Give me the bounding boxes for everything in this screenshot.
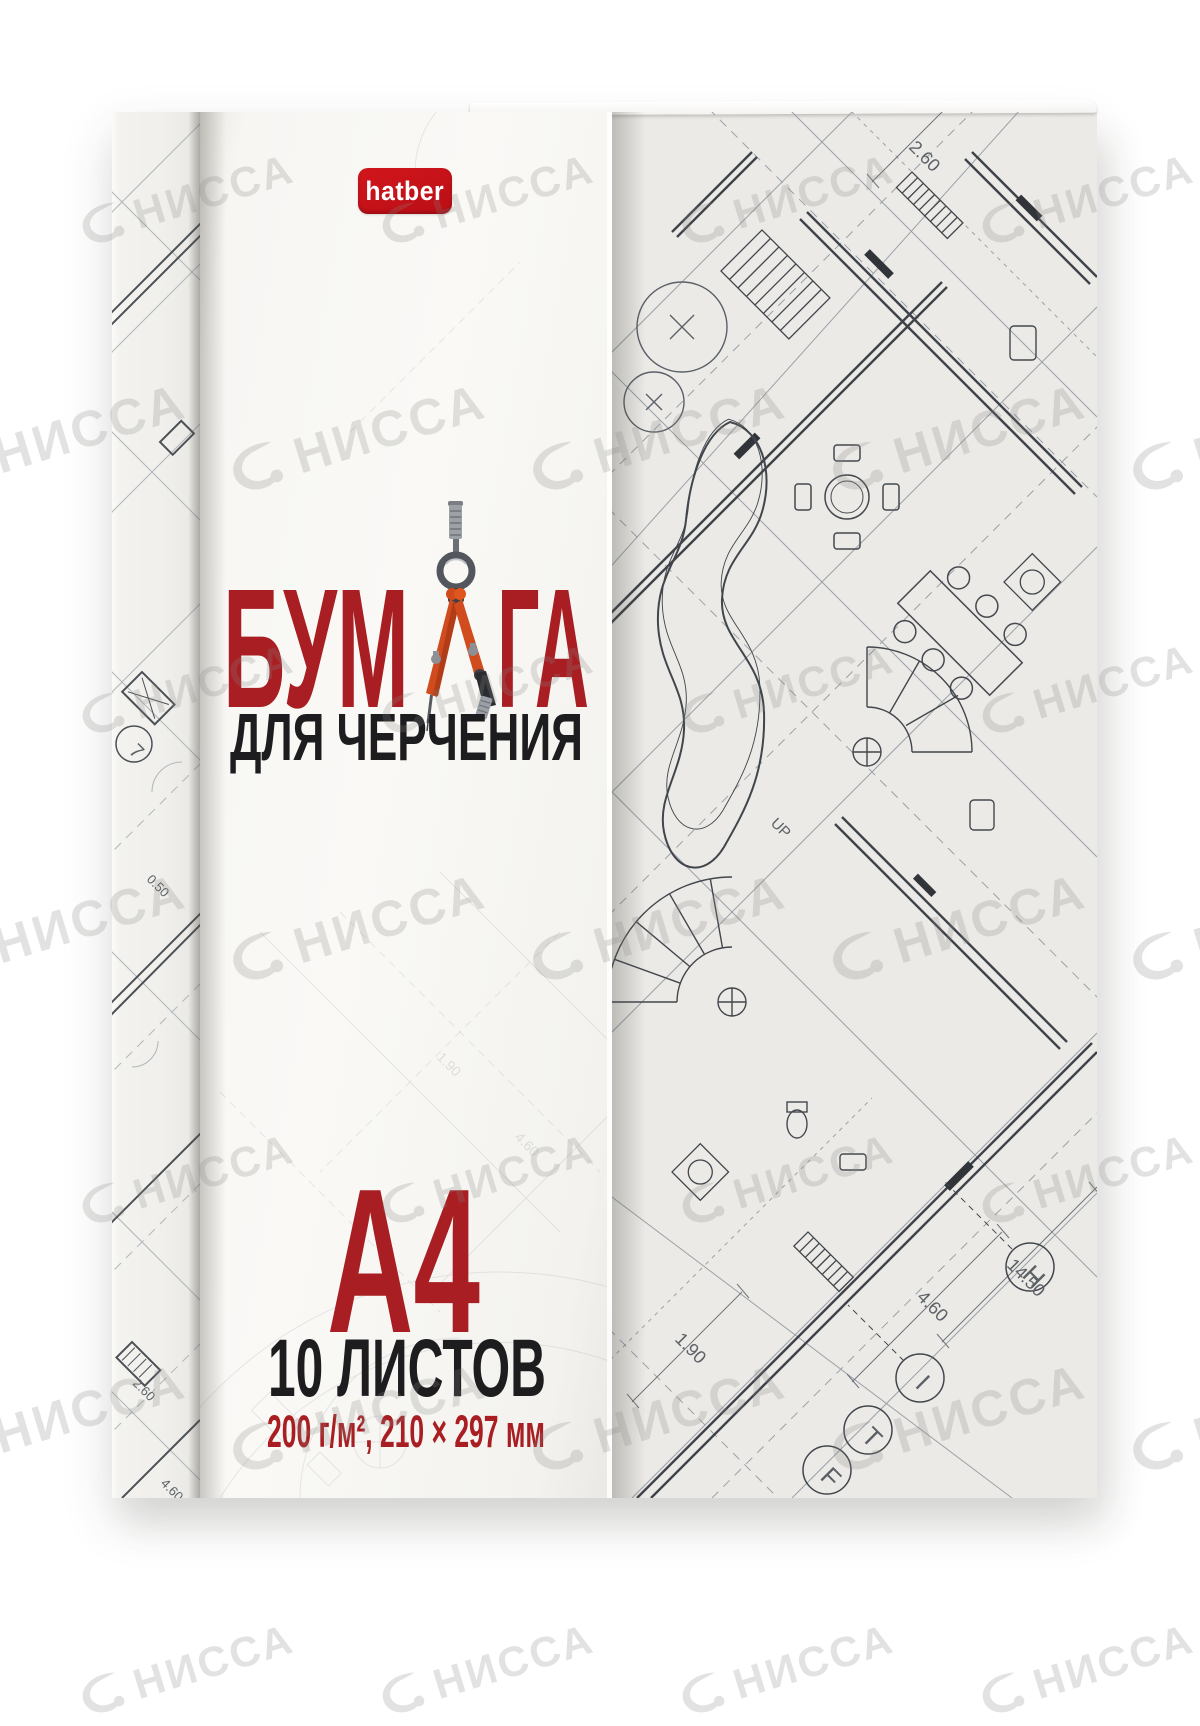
nissa-logo-icon	[1123, 436, 1192, 501]
blueprint-dim-1-90: 1.90	[671, 1329, 710, 1368]
watermark-label: НИССА	[1027, 1613, 1200, 1709]
blueprint-left-pattern: 7 0.50 2.60 4.60	[112, 112, 200, 1498]
watermark-tile: НИССА	[1121, 0, 1200, 15]
brand-logo-label: hatber	[366, 176, 445, 207]
brand-logo: hatber	[358, 168, 452, 214]
watermark-tile: НИССА	[221, 0, 493, 15]
watermark-tile: НИССА	[1121, 371, 1200, 506]
nissa-logo-icon	[1123, 1416, 1192, 1481]
cover-edge-shadow	[612, 112, 646, 1498]
product-subtitle-block: ДЛЯ ЧЕРЧЕНИЯ	[200, 704, 612, 779]
nissa-logo-icon	[1123, 0, 1192, 11]
product-photo: 7 0.50 2.60 4.60	[0, 0, 1200, 1600]
watermark-tile: НИССА	[521, 0, 793, 15]
blueprint-dim-2-60: 2.60	[130, 1376, 159, 1405]
watermark-label: НИССА	[427, 1613, 600, 1709]
watermark-label: НИССА	[1187, 1351, 1200, 1466]
blueprint-dim-4-60: 4.60	[913, 1287, 952, 1326]
watermark-label: НИССА	[1187, 861, 1200, 976]
sheets-block: 10 ЛИСТОВ	[200, 1334, 612, 1409]
paper-pack: 7 0.50 2.60 4.60	[112, 112, 1097, 1498]
watermark-label: НИССА	[1187, 371, 1200, 486]
watermark-tile: НИССА	[73, 1613, 300, 1726]
nissa-logo-icon	[674, 1668, 732, 1722]
watermark-label: НИССА	[127, 1613, 300, 1709]
watermark-tile: НИССА	[673, 1613, 900, 1726]
label-band: 1.90 4.60 hatber БУМ ГА	[200, 112, 612, 1498]
nissa-logo-icon	[1123, 926, 1192, 991]
watermark-tile: НИССА	[821, 0, 1093, 15]
blueprint-right-pattern: H I F Т 14.50 4.60 1.90 2.60 UP	[612, 112, 1097, 1498]
nissa-logo-icon	[523, 0, 592, 11]
back-sheet-strip: 7 0.50 2.60 4.60	[112, 112, 200, 1498]
compass-icon	[426, 501, 496, 733]
specs-label: 200 г/м², 210 × 297 мм	[267, 1406, 545, 1457]
nissa-logo-icon	[374, 1668, 432, 1722]
sheets-label: 10 ЛИСТОВ	[268, 1323, 546, 1414]
fold-crease	[188, 112, 200, 1498]
product-subtitle: ДЛЯ ЧЕРЧЕНИЯ	[230, 700, 583, 775]
blueprint-marker-7: 7	[124, 740, 147, 763]
watermark-tile: НИССА	[973, 1613, 1200, 1726]
nissa-logo-icon	[974, 1668, 1032, 1722]
blueprint-dim-faint-4-60: 4.60	[512, 1129, 543, 1160]
watermark-tile: НИССА	[373, 1613, 600, 1726]
format-block: А4	[200, 1169, 612, 1344]
cover-blueprint: H I F Т 14.50 4.60 1.90 2.60 UP	[612, 112, 1097, 1498]
blueprint-dim-4-60-strip: 4.60	[158, 1476, 187, 1498]
watermark-label: НИССА	[727, 1613, 900, 1709]
nissa-logo-icon	[823, 0, 892, 11]
blueprint-dim-0-50: 0.50	[144, 872, 173, 901]
watermark-tile: НИССА	[1121, 861, 1200, 996]
nissa-logo-icon	[74, 1668, 132, 1722]
nissa-logo-icon	[223, 0, 292, 11]
blueprint-marker-i: I	[910, 1369, 936, 1395]
specs-block: 200 г/м², 210 × 297 мм	[200, 1409, 612, 1459]
watermark-tile: НИССА	[0, 0, 193, 15]
blueprint-up-label: UP	[767, 815, 794, 842]
watermark-tile: НИССА	[1121, 1351, 1200, 1486]
